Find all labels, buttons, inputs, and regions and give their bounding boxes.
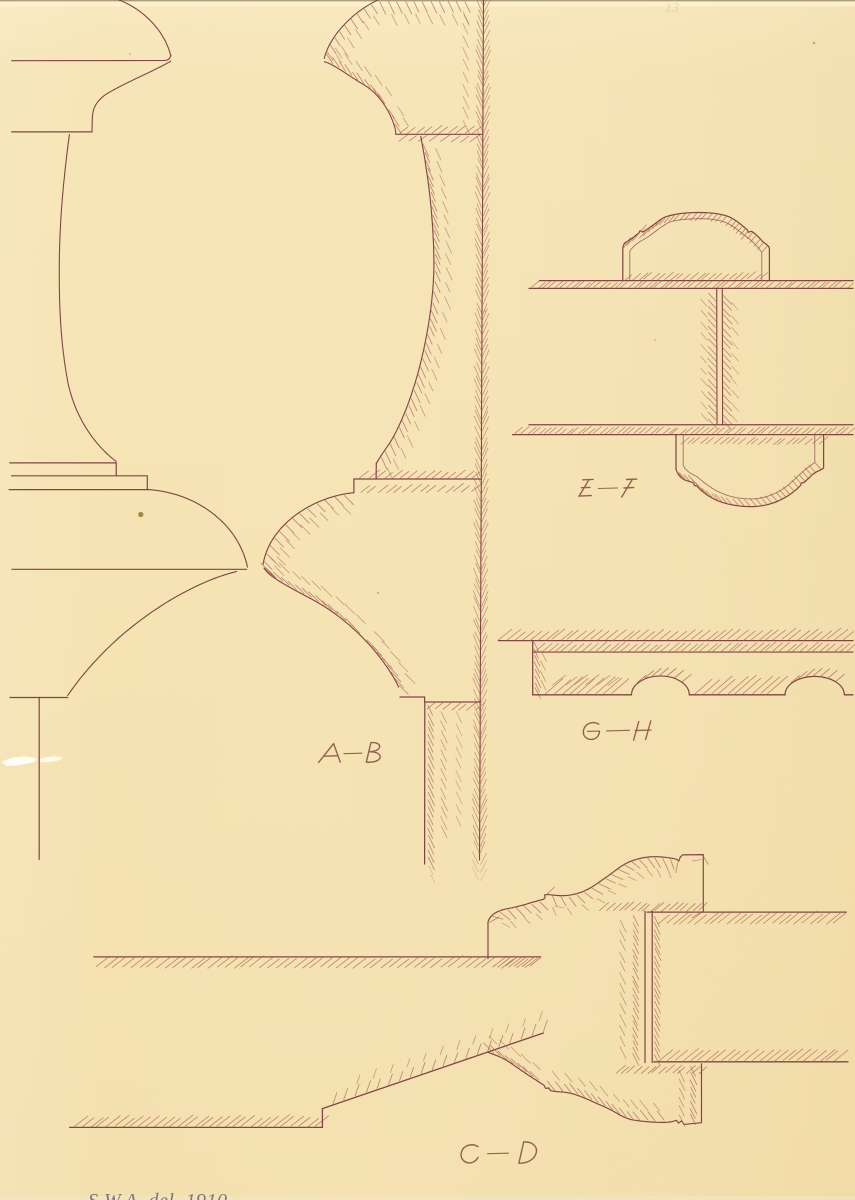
svg-text:S.W.A. del. 1910.: S.W.A. del. 1910. xyxy=(88,1190,233,1200)
svg-text:13: 13 xyxy=(665,1,679,16)
